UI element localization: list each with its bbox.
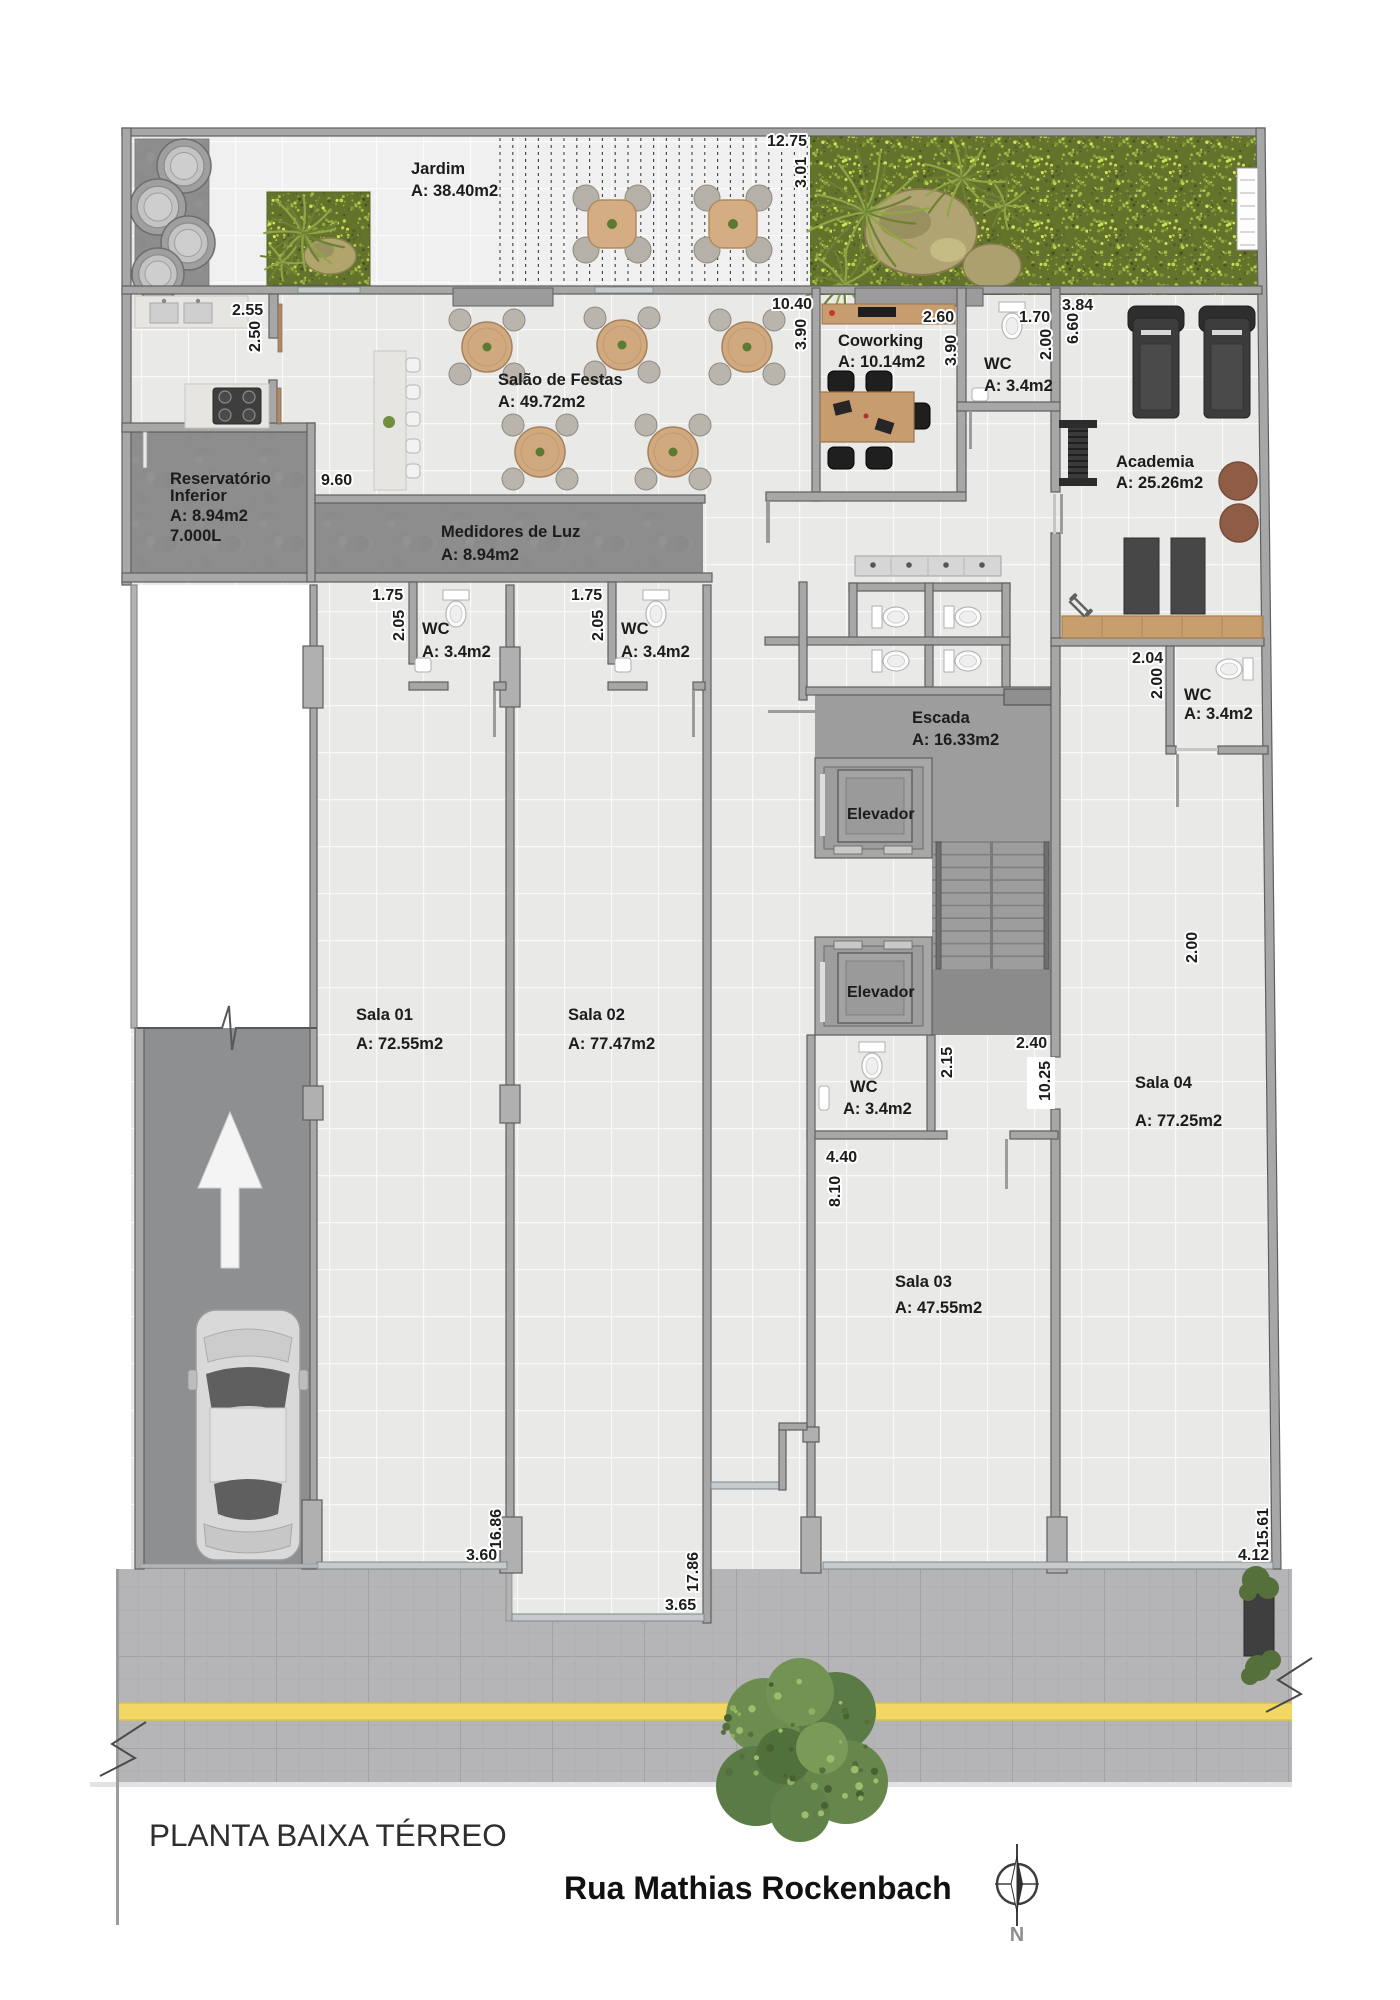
svg-text:Escada: Escada: [912, 709, 971, 727]
svg-text:12.75: 12.75: [767, 133, 807, 150]
svg-text:2.05: 2.05: [590, 610, 607, 641]
svg-text:WC: WC: [621, 620, 649, 638]
svg-text:Coworking: Coworking: [838, 332, 923, 350]
svg-text:1.75: 1.75: [372, 587, 403, 604]
svg-text:A: 16.33m2: A: 16.33m2: [912, 731, 999, 749]
svg-text:3.01: 3.01: [793, 157, 810, 188]
svg-text:A: 3.4m2: A: 3.4m2: [422, 643, 491, 661]
svg-text:2.00: 2.00: [1149, 668, 1166, 699]
svg-text:3.90: 3.90: [943, 335, 960, 366]
svg-text:2.40: 2.40: [1016, 1035, 1047, 1052]
svg-text:A: 8.94m2: A: 8.94m2: [441, 546, 519, 564]
svg-text:2.05: 2.05: [391, 610, 408, 641]
svg-text:Academia: Academia: [1116, 453, 1195, 471]
svg-text:A: 72.55m2: A: 72.55m2: [356, 1035, 443, 1053]
svg-text:Elevador: Elevador: [847, 984, 915, 1001]
svg-text:10.25: 10.25: [1037, 1061, 1054, 1101]
svg-text:A: 3.4m2: A: 3.4m2: [1184, 705, 1253, 723]
svg-text:2.50: 2.50: [247, 321, 264, 352]
svg-text:WC: WC: [850, 1078, 878, 1096]
svg-text:A: 25.26m2: A: 25.26m2: [1116, 474, 1203, 492]
svg-text:2.04: 2.04: [1132, 650, 1163, 667]
svg-text:1.70: 1.70: [1019, 309, 1050, 326]
svg-text:6.60: 6.60: [1065, 313, 1082, 344]
svg-text:PLANTA BAIXA TÉRREO: PLANTA BAIXA TÉRREO: [149, 1817, 507, 1853]
svg-text:WC: WC: [1184, 686, 1212, 704]
svg-text:Elevador: Elevador: [847, 806, 915, 823]
svg-text:A: 77.25m2: A: 77.25m2: [1135, 1112, 1222, 1130]
svg-text:2.00: 2.00: [1038, 329, 1055, 360]
svg-text:8.10: 8.10: [827, 1176, 844, 1207]
svg-text:Sala 02: Sala 02: [568, 1006, 625, 1024]
svg-text:Medidores de Luz: Medidores de Luz: [441, 523, 580, 541]
svg-text:A: 8.94m2: A: 8.94m2: [170, 507, 248, 525]
svg-text:3.90: 3.90: [793, 319, 810, 350]
svg-text:A: 10.14m2: A: 10.14m2: [838, 353, 925, 371]
svg-text:2.60: 2.60: [923, 309, 954, 326]
svg-text:A: 49.72m2: A: 49.72m2: [498, 393, 585, 411]
svg-text:Jardim: Jardim: [411, 160, 465, 178]
svg-text:N: N: [1010, 1924, 1024, 1946]
svg-text:16.86: 16.86: [488, 1509, 505, 1549]
svg-text:Rua Mathias Rockenbach: Rua Mathias Rockenbach: [564, 1870, 952, 1906]
svg-text:WC: WC: [422, 620, 450, 638]
svg-text:3.60: 3.60: [466, 1547, 497, 1564]
svg-text:4.40: 4.40: [826, 1149, 857, 1166]
svg-text:2.00: 2.00: [1184, 932, 1201, 963]
svg-text:10.40: 10.40: [772, 296, 812, 313]
svg-text:7.000L: 7.000L: [170, 527, 221, 545]
svg-text:1.75: 1.75: [571, 587, 602, 604]
svg-text:WC: WC: [984, 355, 1012, 373]
svg-text:A: 3.4m2: A: 3.4m2: [621, 643, 690, 661]
svg-text:A: 3.4m2: A: 3.4m2: [843, 1100, 912, 1118]
svg-text:2.15: 2.15: [939, 1047, 956, 1078]
svg-text:15.61: 15.61: [1255, 1508, 1272, 1548]
svg-text:Sala 04: Sala 04: [1135, 1074, 1193, 1092]
svg-text:Sala 03: Sala 03: [895, 1273, 952, 1291]
svg-text:3.84: 3.84: [1062, 297, 1093, 314]
svg-text:Inferior: Inferior: [170, 487, 227, 505]
svg-text:Reservatório: Reservatório: [170, 470, 271, 488]
svg-text:2.55: 2.55: [232, 302, 263, 319]
svg-text:Salão de Festas: Salão de Festas: [498, 371, 623, 389]
svg-text:A: 3.4m2: A: 3.4m2: [984, 377, 1053, 395]
svg-text:3.65: 3.65: [665, 1597, 696, 1614]
svg-text:A: 47.55m2: A: 47.55m2: [895, 1299, 982, 1317]
svg-text:Sala 01: Sala 01: [356, 1006, 413, 1024]
svg-text:A: 77.47m2: A: 77.47m2: [568, 1035, 655, 1053]
svg-text:4.12: 4.12: [1238, 1547, 1269, 1564]
svg-text:9.60: 9.60: [321, 472, 352, 489]
svg-text:17.86: 17.86: [685, 1552, 702, 1592]
svg-text:A: 38.40m2: A: 38.40m2: [411, 182, 498, 200]
